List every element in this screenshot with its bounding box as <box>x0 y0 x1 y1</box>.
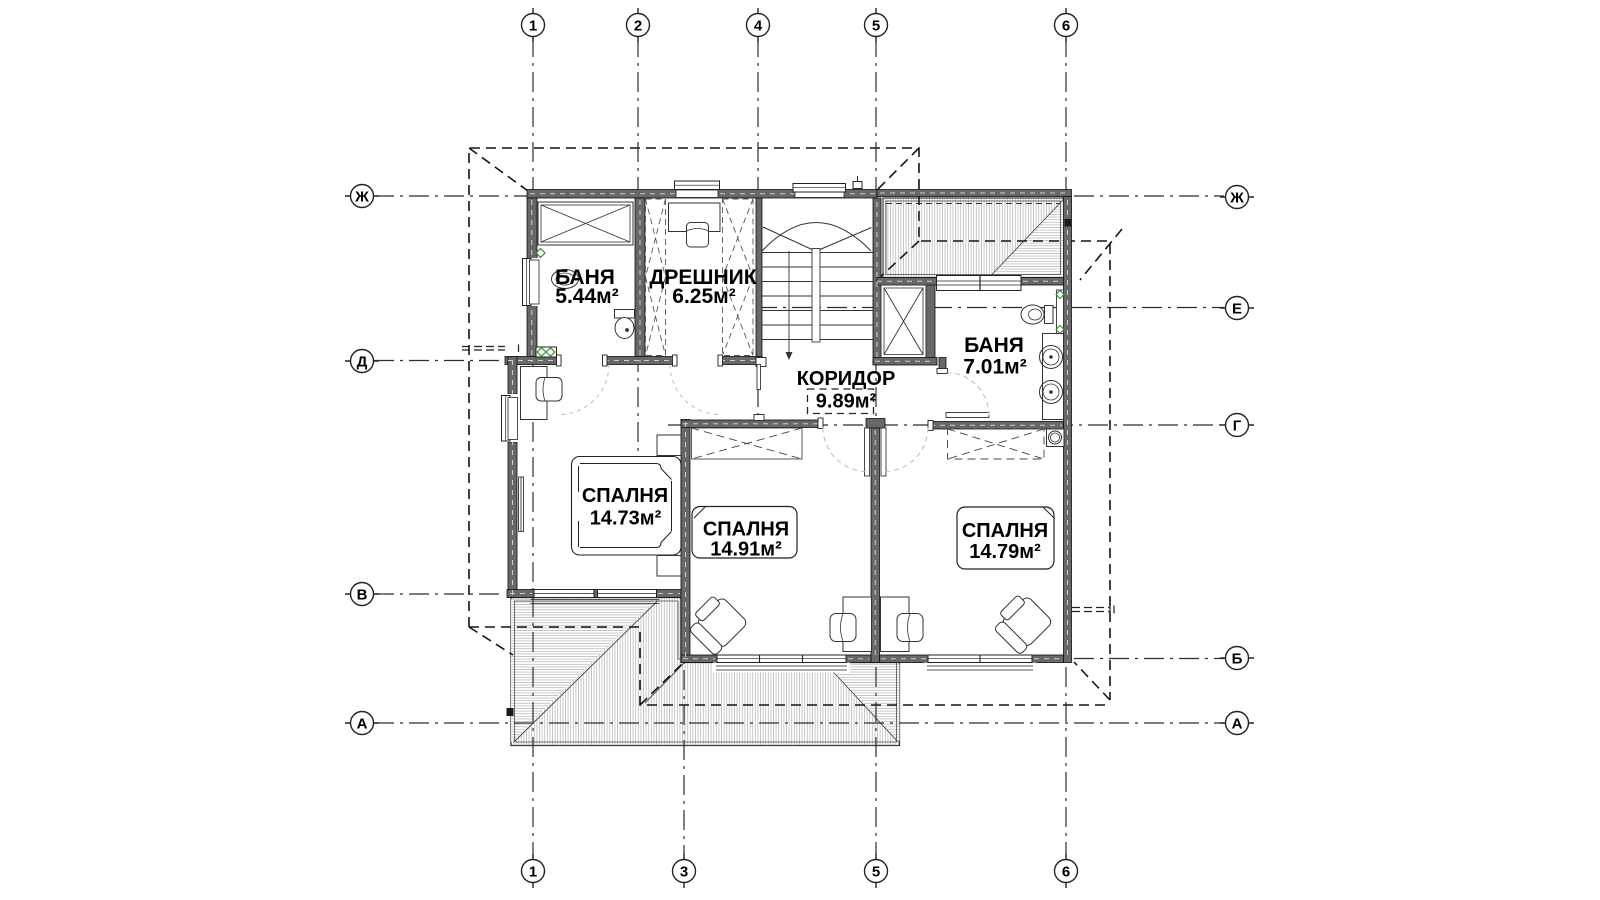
svg-text:Е: Е <box>1232 301 1242 318</box>
svg-text:СПАЛНЯ: СПАЛНЯ <box>703 519 789 541</box>
svg-text:БАНЯ: БАНЯ <box>964 334 1024 357</box>
svg-text:А: А <box>357 716 368 733</box>
svg-text:14.91м²: 14.91м² <box>710 539 782 561</box>
svg-text:Г: Г <box>1233 418 1242 435</box>
svg-text:СПАЛНЯ: СПАЛНЯ <box>962 520 1048 542</box>
svg-text:5.44м²: 5.44м² <box>555 285 618 308</box>
svg-text:2: 2 <box>634 18 642 35</box>
svg-text:Ж: Ж <box>354 189 369 206</box>
svg-text:Д: Д <box>357 354 368 371</box>
svg-text:А: А <box>1232 716 1243 733</box>
svg-text:1: 1 <box>529 864 537 881</box>
svg-text:СПАЛНЯ: СПАЛНЯ <box>582 485 668 507</box>
svg-text:5: 5 <box>872 18 880 35</box>
svg-text:14.79м²: 14.79м² <box>969 541 1041 563</box>
svg-text:4: 4 <box>754 18 763 35</box>
svg-text:В: В <box>357 587 368 604</box>
svg-text:9.89м²: 9.89м² <box>816 391 877 413</box>
svg-text:3: 3 <box>680 864 688 881</box>
svg-text:КОРИДОР: КОРИДОР <box>797 368 896 390</box>
svg-text:6: 6 <box>1062 864 1070 881</box>
svg-text:Б: Б <box>1232 651 1243 668</box>
svg-text:Ж: Ж <box>1229 190 1244 207</box>
svg-text:5: 5 <box>872 864 880 881</box>
svg-text:7.01м²: 7.01м² <box>963 356 1026 379</box>
svg-text:1: 1 <box>529 18 537 35</box>
svg-text:6.25м²: 6.25м² <box>672 285 735 308</box>
svg-text:6: 6 <box>1062 18 1070 35</box>
svg-text:14.73м²: 14.73м² <box>590 508 662 530</box>
